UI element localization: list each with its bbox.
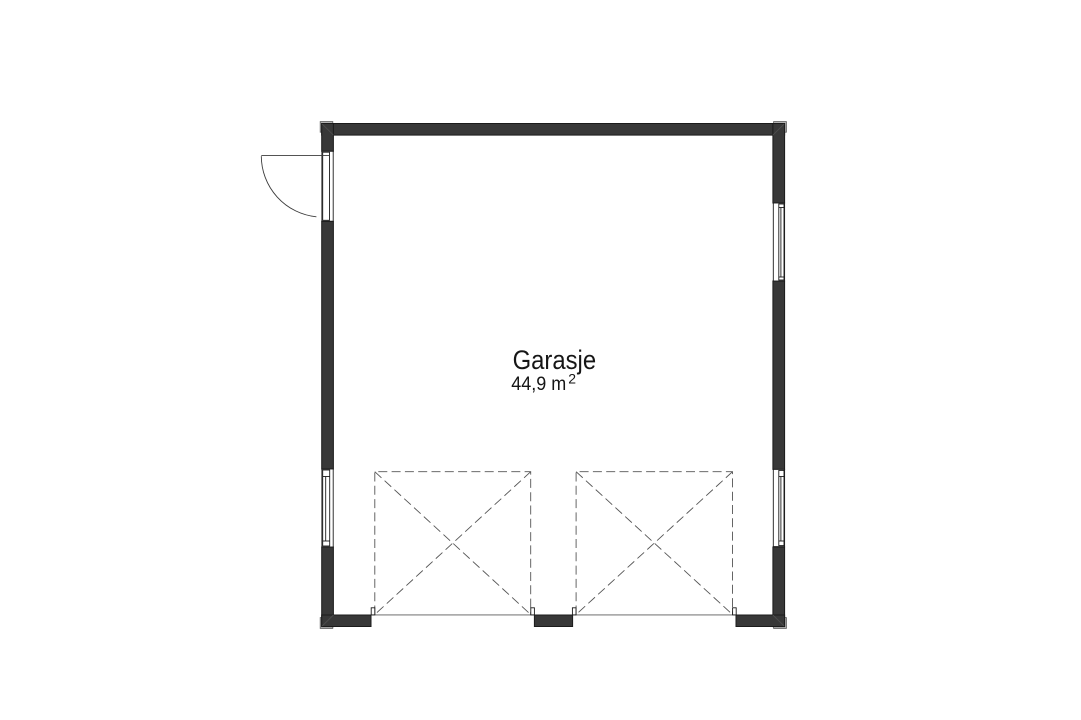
svg-text:44,9 m: 44,9 m: [511, 373, 566, 395]
svg-text:2: 2: [568, 371, 576, 387]
svg-text:Garasje: Garasje: [513, 345, 597, 375]
